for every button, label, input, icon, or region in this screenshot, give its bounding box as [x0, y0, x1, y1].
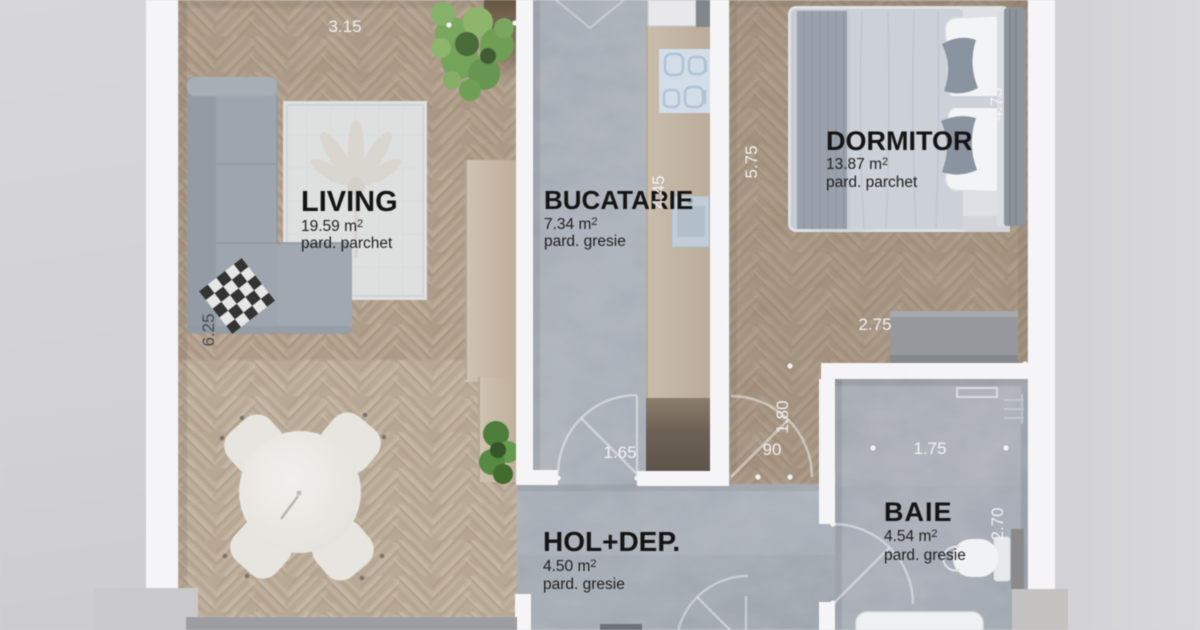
svg-text:pard. gresie: pard. gresie — [884, 547, 966, 564]
svg-text:7.34 m2: 7.34 m2 — [544, 216, 598, 233]
svg-text:LIVING: LIVING — [301, 186, 398, 218]
svg-text:pard. parchet: pard. parchet — [301, 235, 393, 252]
svg-text:1.65: 1.65 — [603, 443, 636, 462]
svg-text:19.59 m2: 19.59 m2 — [301, 218, 363, 235]
svg-text:3.15: 3.15 — [328, 17, 361, 36]
svg-text:pard. gresie: pard. gresie — [544, 233, 626, 250]
svg-text:2.75: 2.75 — [858, 315, 891, 334]
svg-text:5.75: 5.75 — [742, 145, 761, 178]
svg-text:2.70: 2.70 — [988, 507, 1007, 540]
svg-text:pard. parchet: pard. parchet — [826, 174, 918, 191]
svg-text:HOL+DEP.: HOL+DEP. — [543, 526, 680, 557]
svg-text:1.75: 1.75 — [913, 439, 946, 458]
svg-text:6.25: 6.25 — [199, 313, 218, 346]
svg-text:BUCATARIE: BUCATARIE — [544, 185, 693, 215]
svg-text:4.45: 4.45 — [649, 175, 668, 208]
svg-text:DORMITOR: DORMITOR — [826, 126, 973, 156]
svg-text:4.54 m2: 4.54 m2 — [884, 528, 938, 545]
svg-text:pard. gresie: pard. gresie — [543, 576, 625, 593]
svg-text:13.87 m2: 13.87 m2 — [826, 156, 888, 173]
svg-text:4.75: 4.75 — [987, 87, 1006, 120]
svg-text:1.80: 1.80 — [773, 400, 792, 433]
svg-text:90: 90 — [763, 440, 782, 459]
svg-text:BAIE: BAIE — [884, 497, 953, 527]
svg-text:4.50 m2: 4.50 m2 — [543, 558, 597, 575]
